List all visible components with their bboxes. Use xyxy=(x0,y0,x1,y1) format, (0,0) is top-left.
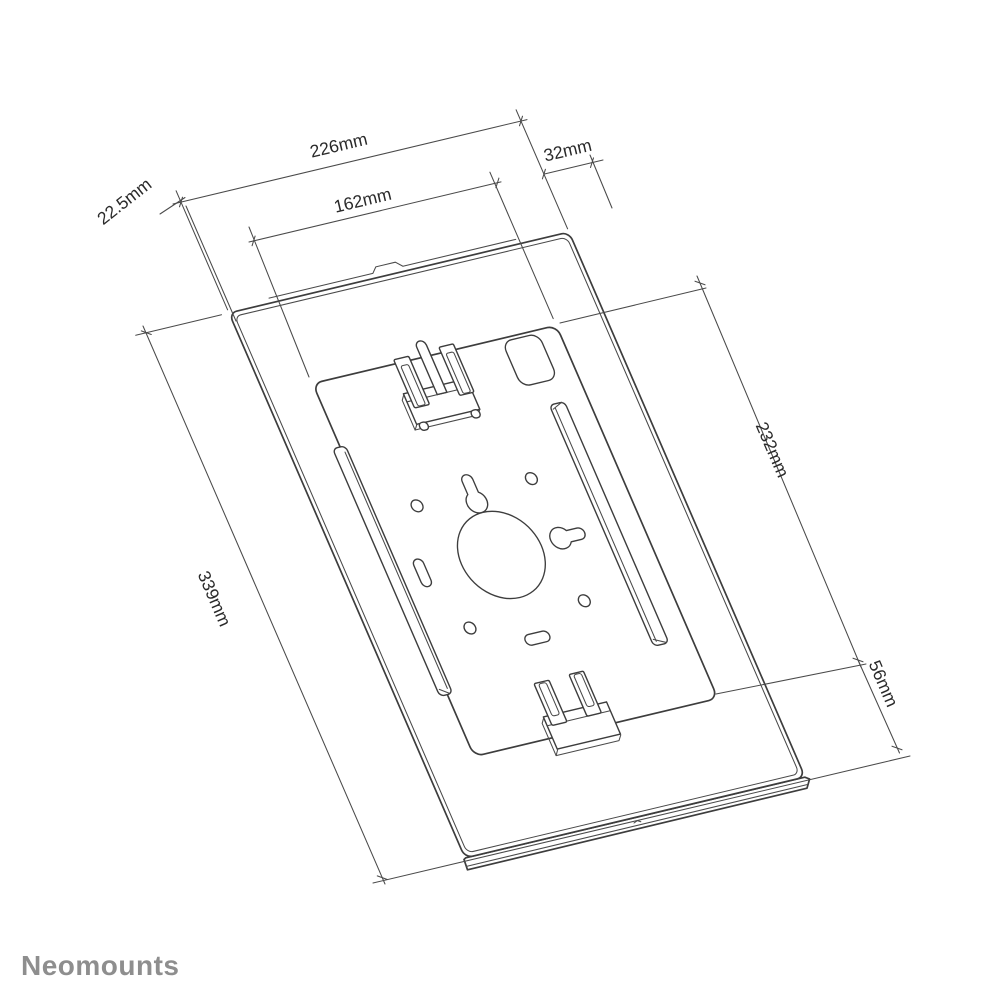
dimension-label-front-height: 339mm xyxy=(194,568,236,630)
extension-line xyxy=(186,206,236,321)
dimension-label-opening-height: 232mm xyxy=(752,419,794,481)
dimension-label-top-right-offset: 32mm xyxy=(542,135,594,166)
extension-line xyxy=(176,191,228,310)
dimension-label-bottom-section-height: 56mm xyxy=(865,657,903,710)
extension-line xyxy=(136,315,222,335)
dimension-label-edge-depth: 22.5mm xyxy=(93,174,155,229)
product-dimension-drawing-page: 226mm 32mm 22.5mm 162mm 232mm 56mm 339mm… xyxy=(0,0,1000,1000)
brand-logo: Neomounts xyxy=(21,950,180,981)
extension-line xyxy=(590,155,612,208)
enclosure-object xyxy=(225,222,805,858)
dimension-line xyxy=(160,198,185,215)
extension-line xyxy=(516,110,568,229)
dimension-label-front-width: 226mm xyxy=(308,129,369,162)
dimension-label-opening-width: 162mm xyxy=(332,184,393,217)
technical-drawing: 226mm 32mm 22.5mm 162mm 232mm 56mm 339mm… xyxy=(0,0,1000,1000)
